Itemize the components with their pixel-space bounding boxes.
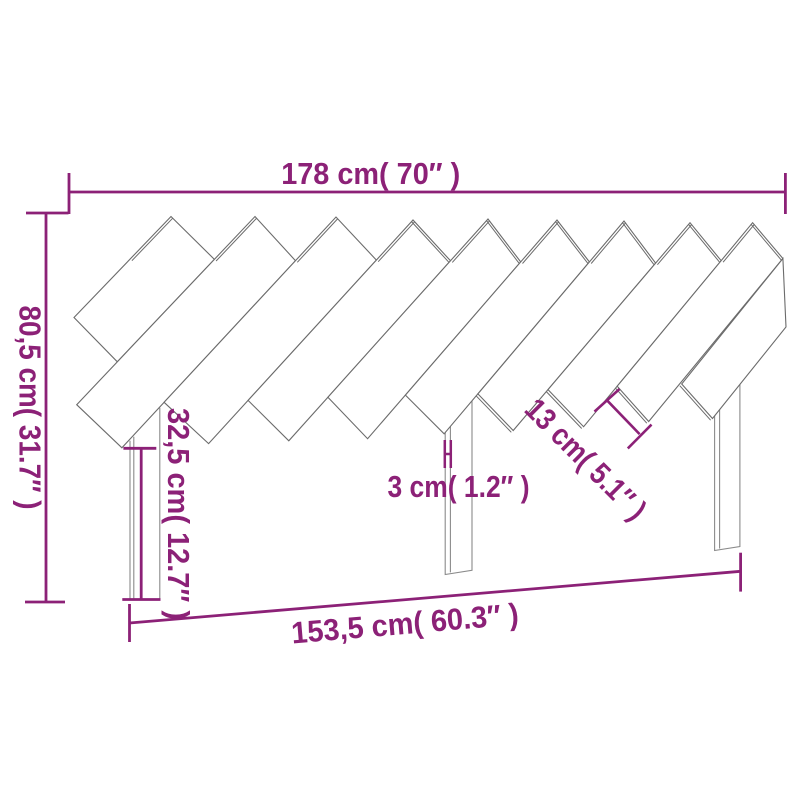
svg-text:80,5 cm( 31.7″ ): 80,5 cm( 31.7″ ) (13, 306, 47, 510)
svg-text:3 cm( 1.2″ ): 3 cm( 1.2″ ) (388, 470, 530, 504)
svg-text:178 cm( 70″ ): 178 cm( 70″ ) (281, 157, 460, 191)
svg-text:32,5 cm( 12.7″ ): 32,5 cm( 12.7″ ) (161, 408, 195, 620)
